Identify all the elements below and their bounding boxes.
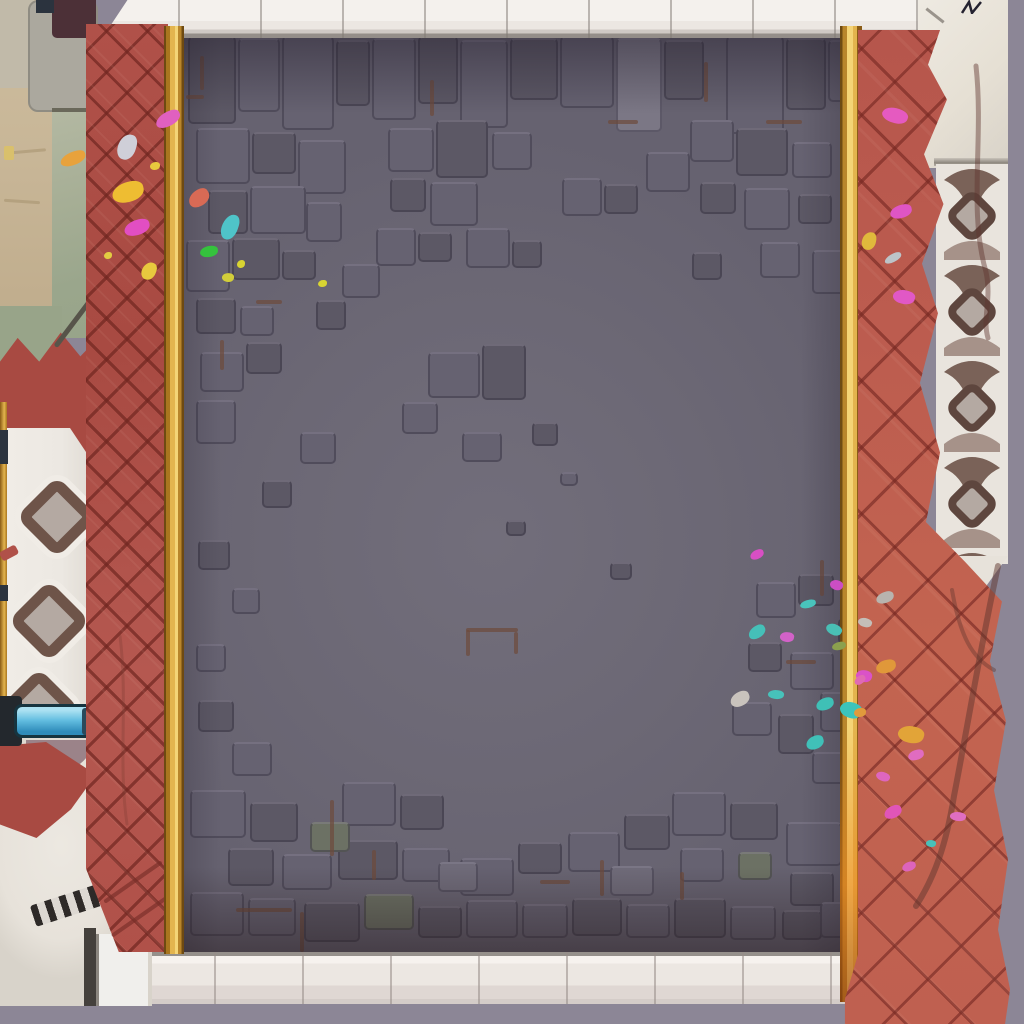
cobblestone (756, 582, 796, 618)
bottom-curb (128, 952, 856, 1004)
floor-seam (430, 80, 434, 116)
cobblestone (510, 38, 558, 100)
dark-corner-tile (36, 0, 54, 13)
cobblestone (336, 40, 370, 106)
cobblestone (282, 250, 316, 280)
cobblestone (196, 400, 236, 444)
cobblestone (492, 132, 532, 170)
cobblestone (506, 520, 526, 536)
diamond-ornament (8, 580, 90, 662)
cobblestone (232, 588, 260, 614)
cobblestone (518, 842, 562, 874)
cobblestone (250, 186, 306, 234)
cobblestone (428, 352, 480, 398)
floor-seam (820, 560, 824, 596)
cobblestone (304, 902, 360, 942)
floor-seam (220, 340, 224, 370)
cobblestone (512, 240, 542, 268)
floor-seam (300, 912, 304, 952)
cobblestone (786, 38, 826, 110)
floor-seam (466, 630, 470, 656)
cobblestone (748, 642, 782, 672)
floor-seam (372, 850, 376, 880)
floor-seam (256, 300, 282, 304)
cobblestone (376, 228, 416, 266)
cobblestone (190, 790, 246, 838)
cobblestone (692, 252, 722, 280)
cobblestone (792, 142, 832, 178)
cobblestone (460, 40, 508, 128)
floor-seam (786, 660, 816, 664)
cobblestone (624, 814, 670, 850)
cobblestone (790, 872, 834, 906)
cobblestone (248, 898, 296, 936)
cobblestone (246, 342, 282, 374)
cobblestone (790, 652, 834, 690)
wall-yellow-mark (4, 146, 14, 160)
top-curb (98, 0, 940, 38)
cobblestone (190, 892, 244, 936)
left-edge-dark-notch (0, 430, 8, 464)
cobblestone (738, 852, 772, 880)
floor-seam (608, 120, 638, 124)
floor-seam (766, 120, 802, 124)
cobblestone (646, 152, 690, 192)
floor-seam (680, 872, 684, 900)
cobblestone (240, 306, 274, 336)
cobblestone (208, 190, 248, 234)
cobblestone (238, 38, 280, 112)
cobblestone (626, 904, 670, 938)
cobblestone (466, 900, 518, 938)
cobblestone (372, 38, 416, 120)
stone-floor[interactable] (166, 30, 856, 960)
cobblestone (316, 300, 346, 330)
cobblestone (562, 178, 602, 216)
cobblestone (560, 36, 614, 108)
cobblestone (744, 188, 790, 230)
floor-seam (330, 800, 334, 856)
cobblestone (196, 298, 236, 334)
left-edge-dark-notch (0, 585, 8, 601)
floor-seam (704, 62, 708, 102)
cobblestone (198, 700, 234, 732)
floor-seam (514, 632, 518, 654)
diamond-ornament (16, 476, 98, 558)
floor-seam (200, 56, 204, 90)
cobblestone (390, 178, 426, 212)
wall-crack-line (4, 199, 40, 205)
cobblestone (572, 898, 622, 936)
cobblestone (262, 480, 292, 508)
cobblestone (736, 128, 788, 176)
cobblestone (786, 822, 842, 866)
cobblestone (306, 202, 342, 242)
cobblestone (462, 432, 502, 462)
cobblestone (674, 898, 726, 938)
cobblestone (760, 242, 800, 278)
cobblestone (672, 792, 726, 836)
cobblestone (664, 40, 704, 100)
cobblestone (610, 866, 654, 896)
arena-scene (0, 0, 1024, 1024)
cobblestone (232, 238, 280, 280)
cobblestone (300, 432, 336, 464)
left-brick-path (86, 24, 168, 952)
cobblestone (482, 344, 526, 400)
corner-scribble-mark (960, 0, 990, 14)
cobblestone (282, 36, 334, 130)
cobblestone (400, 794, 444, 830)
cobblestone (364, 894, 414, 930)
cobblestone (188, 36, 236, 124)
cobblestone (532, 422, 558, 446)
cobblestone (732, 702, 772, 736)
floor-seam (466, 628, 518, 632)
cobblestone (466, 228, 510, 268)
cobblestone (228, 848, 274, 886)
cobblestone (232, 742, 272, 776)
cobblestone (798, 574, 834, 606)
cobblestone (560, 472, 578, 486)
cobblestone (418, 906, 462, 938)
stair-dark-edge (84, 928, 96, 1006)
cobblestone (604, 184, 638, 214)
cobblestone (388, 128, 434, 172)
cobblestone (282, 854, 332, 890)
cobblestone (418, 36, 458, 104)
cobblestone (430, 182, 478, 226)
ornament-lattice (936, 164, 1008, 564)
cobblestone (690, 120, 734, 162)
cobblestone (680, 848, 724, 882)
cobblestone (778, 714, 814, 754)
cobblestone (616, 38, 662, 132)
cobblestone (798, 194, 832, 224)
cobblestone (782, 910, 822, 940)
cobblestone (252, 132, 296, 174)
left-gold-trim (164, 26, 184, 954)
cobblestone (730, 906, 776, 940)
cobblestone (342, 782, 396, 826)
cobblestone (522, 904, 568, 938)
cobblestone (402, 402, 438, 434)
cobblestone (198, 540, 230, 570)
cobblestone (196, 644, 226, 672)
cobblestone (700, 182, 736, 214)
cobblestone (298, 140, 346, 194)
cobblestone (250, 802, 298, 842)
floor-seam (236, 908, 292, 912)
cobblestone (438, 862, 478, 892)
floor-seam (600, 860, 604, 896)
cobblestone (196, 128, 250, 184)
cobblestone (730, 802, 778, 840)
cobblestone (342, 264, 380, 298)
cobblestone (418, 232, 452, 262)
floor-seam (540, 880, 570, 884)
cobblestone (610, 562, 632, 580)
cobblestone (186, 240, 230, 292)
floor-seam (186, 95, 204, 99)
cobblestone (436, 120, 488, 178)
